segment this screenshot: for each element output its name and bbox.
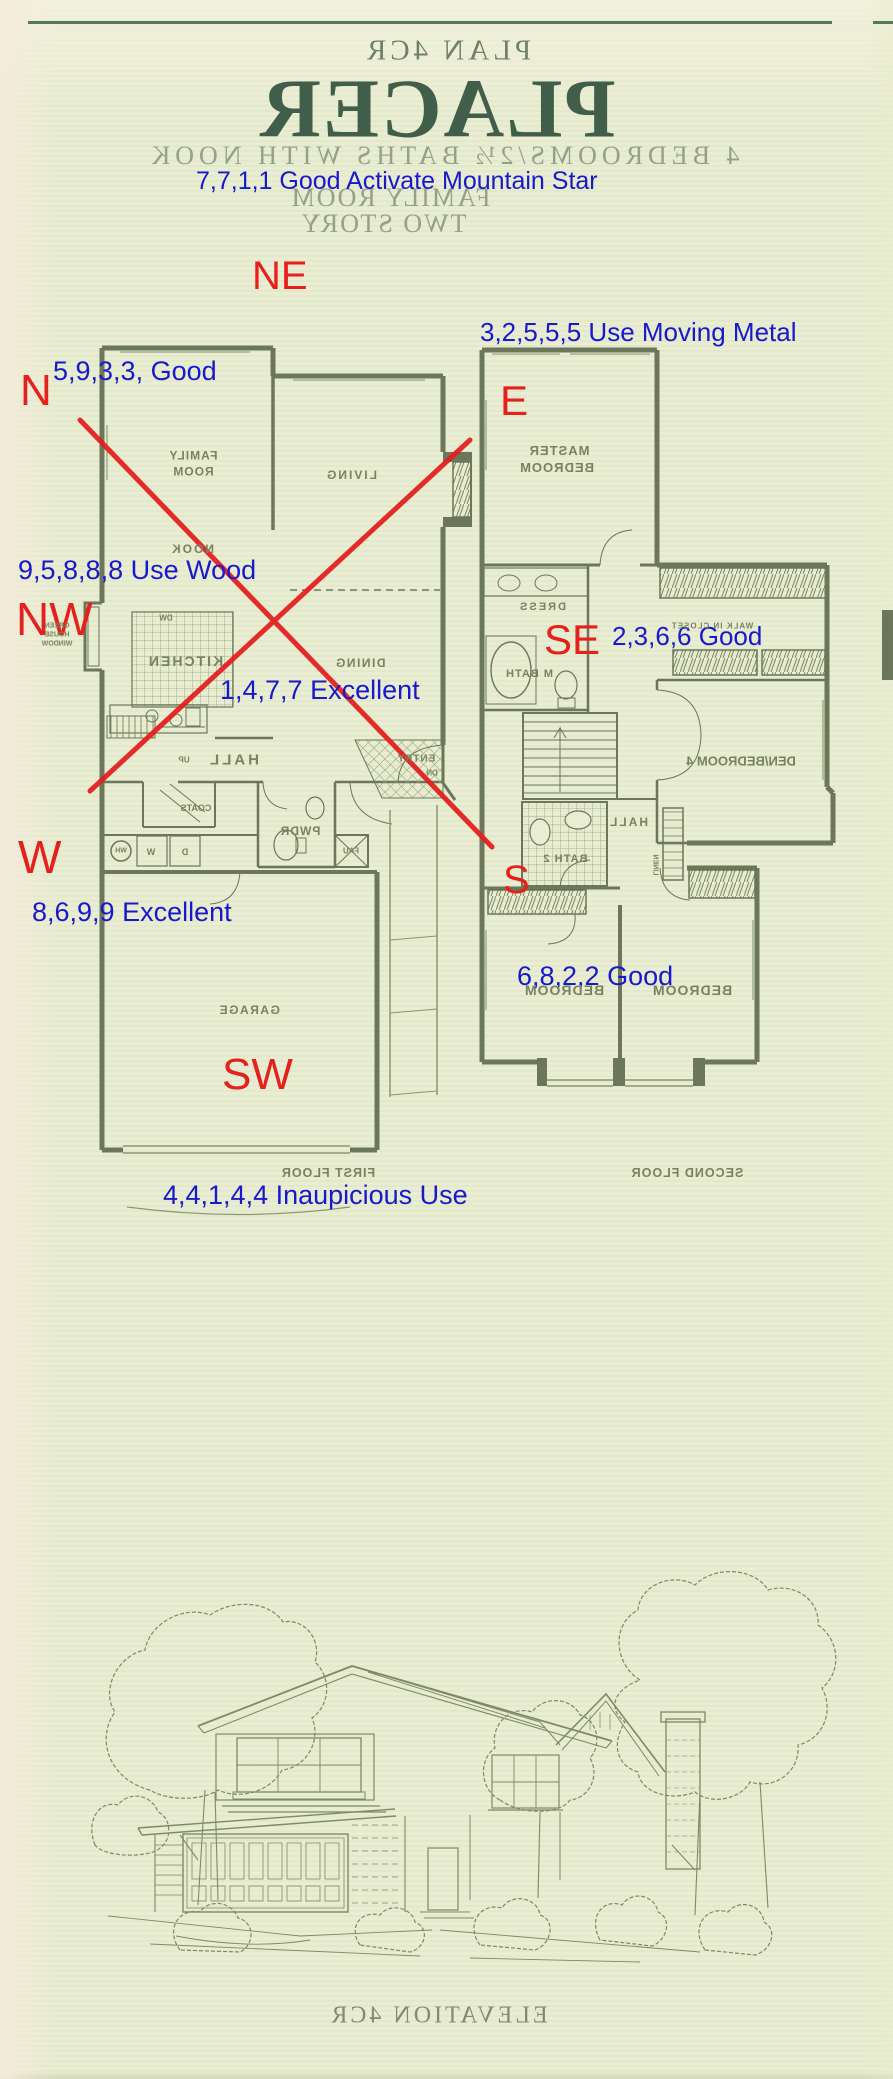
room-label-family-room: FAMILY ROOM [164,448,222,479]
room-label-bath2: BATH 2 [543,853,588,865]
note-8699-excellent: 8,6,9,9 Excellent [32,897,232,928]
fixture-label-dishwasher: DW [159,614,172,623]
room-label-den-bedroom4: DEN/BEDROOM 4 [686,754,796,769]
direction-n: N [20,366,52,416]
room-label-garage: GARAGE [218,1003,280,1017]
direction-sw: SW [222,1050,293,1100]
room-label-nook: NOOK [170,542,214,556]
room-label-powder: PWDR [280,824,321,838]
room-label-dress: DRESS [518,601,566,613]
fixture-label-dn: DN [426,769,438,778]
direction-se: SE [544,616,600,664]
fixture-label-wh: WH [115,848,127,855]
note-moving-metal: 3,2,5,5,5 Use Moving Metal [480,317,797,348]
room-label-dining: DINING [335,656,386,670]
first-floor-caption: FIRST FLOOR [281,1166,375,1180]
direction-ne: NE [252,254,308,299]
fixture-label-up: UP [178,756,189,765]
room-label-entry: ENTRY [397,754,436,765]
room-label-bedroom-right: BEDROOM [652,982,732,998]
elevation-sketch [92,1572,836,1962]
direction-s: S [503,858,530,903]
note-mountain-star: 7,7,1,1 Good Activate Mountain Star [196,167,598,196]
second-floor-caption: SECOND FLOOR [631,1166,744,1180]
elevation-caption: ELEVATION 4CR [328,2003,547,2030]
room-label-bedroom-left: BEDROOM [524,982,604,998]
note-inaupicious: 4,4,1,4,4 Inaupicious Use [163,1180,468,1211]
fixture-label-dryer: D [182,847,189,857]
room-label-coats: COATS [181,803,212,813]
room-label-master-bath: M BATH [505,668,553,680]
note-1477-excellent: 1,4,7,7 Excellent [220,675,420,706]
room-label-hall-first: HALL [207,752,259,769]
direction-e: E [500,377,528,425]
fixture-label-fau: FAU [343,847,359,856]
room-label-hall-second: HALL [608,815,648,829]
room-label-living: LIVING [325,468,377,482]
note-use-wood: 9,5,8,8,8 Use Wood [18,555,256,586]
subtitle-two-story: TWO STORY [299,209,466,239]
room-label-master-bedroom: MASTER BEDROOM [524,443,594,477]
fixture-label-greenhouse-window: GREEN HOUSE WINDOW [36,621,78,648]
plan-and-elevation-drawing [0,0,893,2079]
note-5933-good: 5,9,3,3, Good [53,356,217,387]
room-label-walk-in-closet: WALK IN CLOSET [671,622,753,631]
room-label-linen: LINEN [652,855,659,876]
direction-w: W [18,830,61,884]
scanned-floor-plan-page: PLAN 4CR PLACER 4 BEDROOMS/2½ BATHS WITH… [0,0,893,2079]
fixture-label-washer: W [147,847,156,857]
room-label-kitchen: KITCHEN [147,653,223,669]
